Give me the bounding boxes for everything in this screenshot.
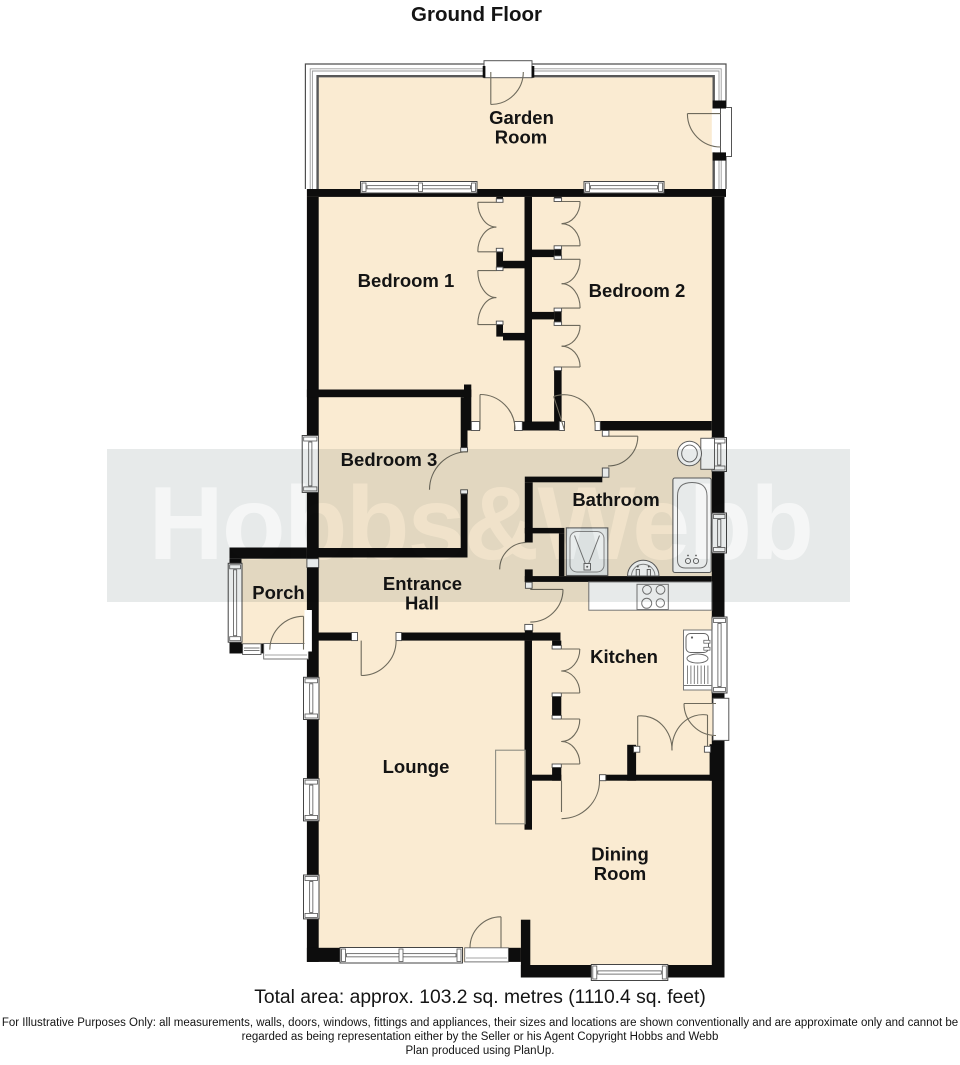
- svg-text:Bedroom 1: Bedroom 1: [358, 270, 455, 291]
- svg-text:Room: Room: [594, 863, 646, 884]
- svg-text:Lounge: Lounge: [383, 756, 450, 777]
- svg-text:Bedroom 2: Bedroom 2: [589, 280, 686, 301]
- svg-text:Dining: Dining: [591, 844, 649, 865]
- svg-text:Kitchen: Kitchen: [590, 646, 658, 667]
- svg-text:Room: Room: [495, 127, 547, 148]
- svg-text:Garden: Garden: [489, 107, 554, 128]
- svg-text:Ground Floor: Ground Floor: [411, 3, 542, 26]
